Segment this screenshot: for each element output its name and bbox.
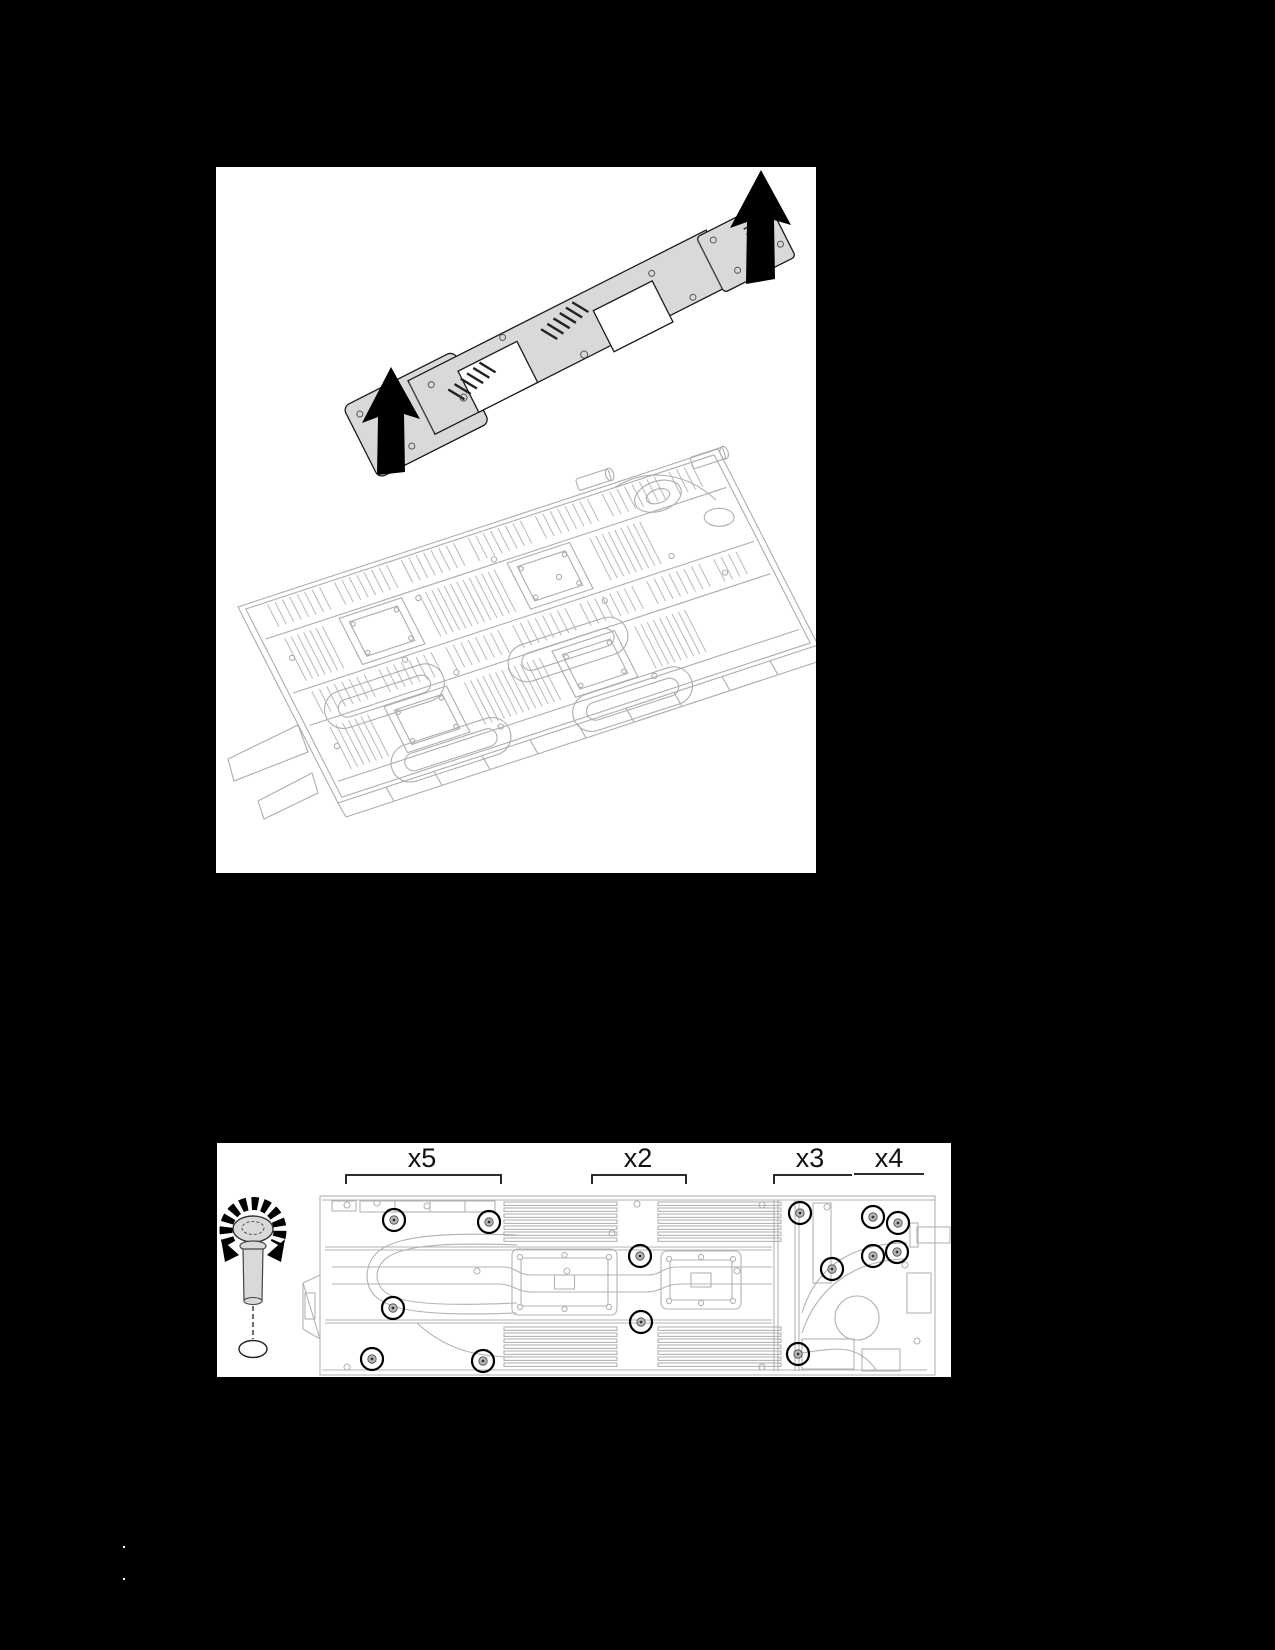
screw-group-label: x2 xyxy=(624,1143,653,1173)
node-board-line-art xyxy=(303,1196,950,1375)
hose-loop xyxy=(503,612,633,686)
torque-screwdriver-icon xyxy=(221,1204,285,1358)
screw-marker xyxy=(862,1206,884,1228)
washer xyxy=(239,1341,267,1358)
carrier-plate xyxy=(343,194,800,478)
screw-marker xyxy=(630,1311,652,1333)
screw-group-x5: x5 xyxy=(346,1143,501,1372)
screw-marker xyxy=(887,1212,909,1234)
stray-pixel-dot xyxy=(123,1578,125,1580)
screw-group-x4: x4 xyxy=(854,1143,924,1267)
screw-group-label: x4 xyxy=(875,1143,904,1173)
screwdriver-shaft xyxy=(243,1249,263,1301)
carrier-body xyxy=(408,230,733,434)
figure-screw-locations: x5x2x3x4 xyxy=(217,1143,951,1377)
screw-group-bracket xyxy=(592,1175,686,1184)
screw-marker xyxy=(821,1258,843,1280)
screw-marker xyxy=(361,1348,383,1370)
figure-carrier-lift xyxy=(216,167,816,873)
screw-group-label: x3 xyxy=(796,1143,825,1173)
screw-marker xyxy=(478,1211,500,1233)
hose-loop xyxy=(320,659,450,733)
qd-tube xyxy=(690,445,730,469)
document-page: { "page": { "width_px": 1275, "height_px… xyxy=(0,0,1275,1650)
screw-marker xyxy=(629,1245,651,1267)
screw-group-bracket xyxy=(774,1175,852,1184)
screw-group-bracket xyxy=(346,1175,501,1184)
stray-pixel-dot xyxy=(123,1546,125,1548)
screw-group-annotations: x5x2x3x4 xyxy=(346,1143,924,1372)
water-loop-assembly xyxy=(228,445,816,819)
screw-marker xyxy=(787,1343,809,1365)
screw-group-label: x5 xyxy=(408,1143,437,1173)
qd-tube xyxy=(575,467,615,491)
screw-marker xyxy=(789,1202,811,1224)
screw-marker xyxy=(472,1350,494,1372)
